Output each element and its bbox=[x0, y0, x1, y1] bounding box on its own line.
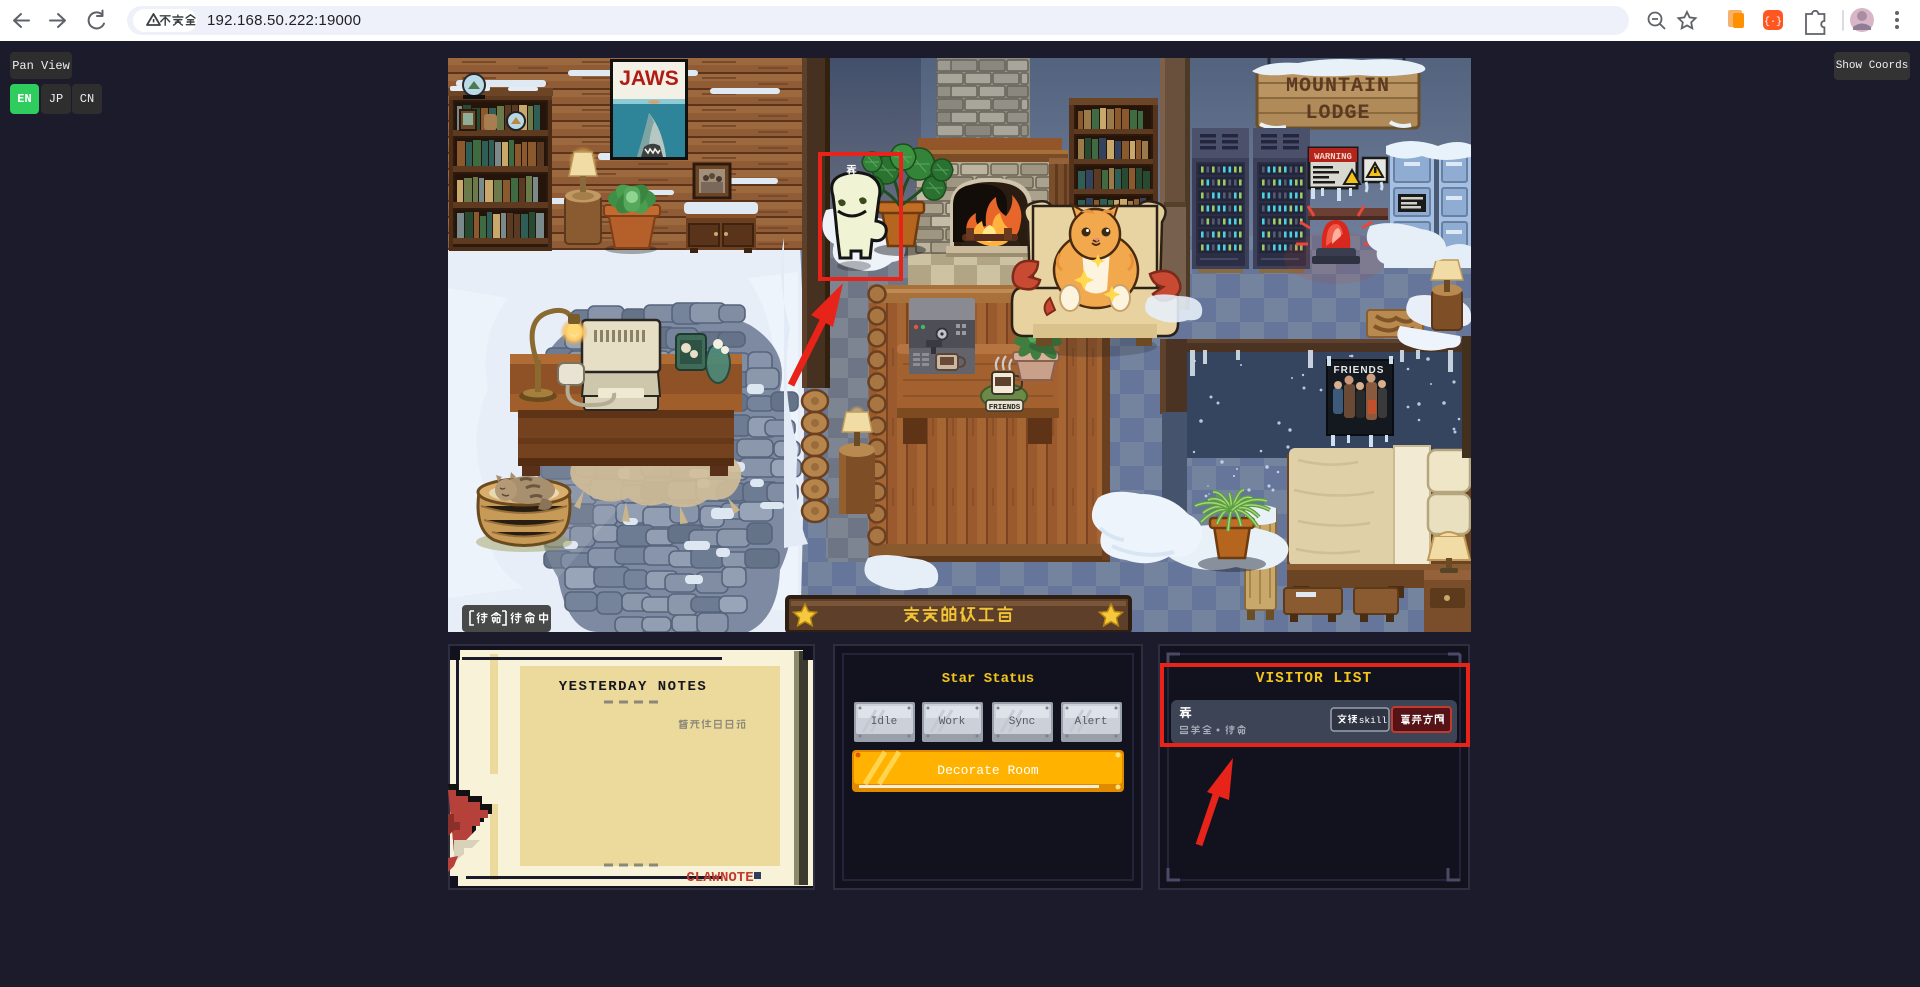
svg-text:FRIENDS: FRIENDS bbox=[989, 404, 1021, 412]
svg-text:Alert: Alert bbox=[1074, 716, 1107, 728]
svg-text:MOUNTAIN: MOUNTAIN bbox=[1286, 75, 1390, 98]
svg-text:Idle: Idle bbox=[871, 716, 897, 728]
svg-text:JAWS: JAWS bbox=[619, 67, 679, 90]
svg-text:Sync: Sync bbox=[1009, 716, 1035, 728]
svg-text:FRIENDS: FRIENDS bbox=[1334, 365, 1385, 376]
svg-text:WARNING: WARNING bbox=[1314, 152, 1352, 162]
svg-text:Work: Work bbox=[939, 716, 966, 728]
svg-text:{·}: {·} bbox=[1764, 16, 1782, 28]
svg-text:Star Status: Star Status bbox=[942, 671, 1034, 687]
svg-text:LODGE: LODGE bbox=[1305, 102, 1370, 125]
svg-text:Decorate Room: Decorate Room bbox=[937, 763, 1039, 778]
